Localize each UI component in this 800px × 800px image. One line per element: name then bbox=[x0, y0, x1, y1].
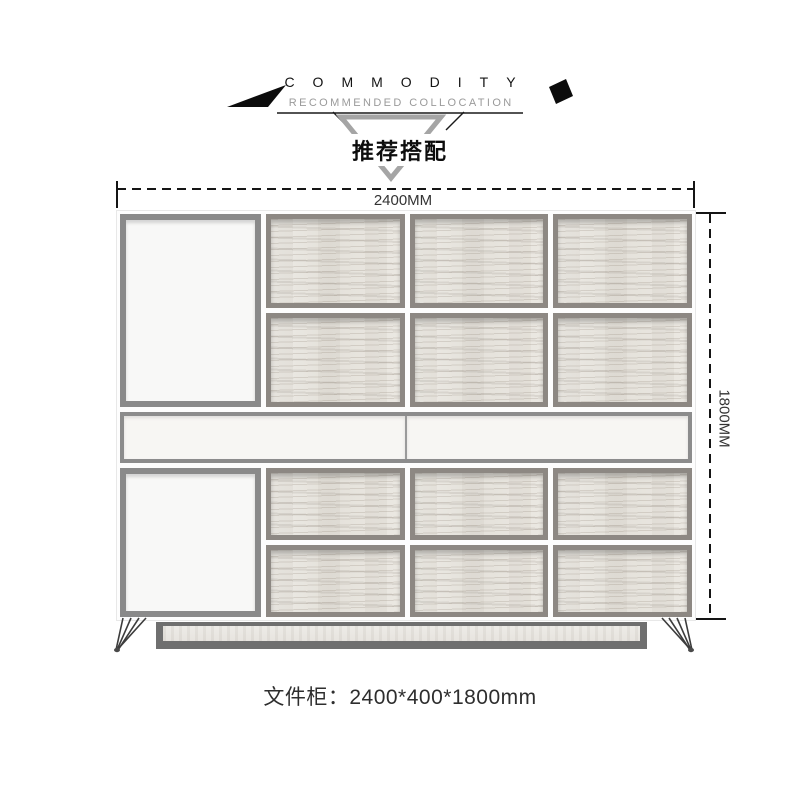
drawer-panel bbox=[407, 416, 688, 460]
cabinet-bottom-section bbox=[120, 468, 692, 617]
hairpin-leg-right bbox=[652, 617, 696, 653]
wood-panel bbox=[553, 468, 692, 540]
hairpin-leg-left bbox=[112, 617, 156, 653]
wood-panel bbox=[410, 214, 549, 308]
wood-panel bbox=[266, 313, 405, 407]
height-dimension-tick-bottom bbox=[696, 618, 726, 620]
width-dimension-line bbox=[117, 188, 695, 190]
height-dimension-line bbox=[709, 214, 711, 618]
wood-panel bbox=[553, 313, 692, 407]
height-dimension-label: 1800MM bbox=[716, 382, 733, 456]
wood-panel bbox=[410, 468, 549, 540]
funnel-slash-left bbox=[333, 112, 351, 130]
badge-text: 推荐搭配 bbox=[346, 134, 454, 166]
drawer-panel bbox=[124, 416, 405, 460]
width-dimension-tick-left bbox=[116, 181, 118, 208]
commodity-title: COMMODITY bbox=[0, 74, 800, 90]
left-door-panel-bottom bbox=[120, 468, 261, 617]
cabinet bbox=[117, 211, 695, 620]
width-dimension-tick-right bbox=[693, 181, 695, 208]
cabinet-top-section bbox=[120, 214, 692, 407]
base-plinth bbox=[156, 622, 647, 649]
recommended-collocation-subtitle: RECOMMENDED COLLOCATION bbox=[0, 97, 800, 109]
wood-panel bbox=[266, 468, 405, 540]
wood-panel bbox=[410, 313, 549, 407]
width-dimension-label: 2400MM bbox=[338, 192, 468, 209]
wood-panel bbox=[266, 214, 405, 308]
left-door-panel-top bbox=[120, 214, 261, 407]
product-caption: 文件柜：2400*400*1800mm bbox=[0, 681, 800, 711]
height-dimension-tick-top bbox=[696, 212, 726, 214]
badge-recommended: 推荐搭配 bbox=[0, 134, 800, 166]
wood-panel bbox=[266, 545, 405, 617]
wood-panel bbox=[553, 545, 692, 617]
wood-panel bbox=[553, 214, 692, 308]
wood-panel bbox=[410, 545, 549, 617]
funnel-slash-right bbox=[446, 112, 464, 130]
middle-drawer-band bbox=[120, 412, 692, 464]
